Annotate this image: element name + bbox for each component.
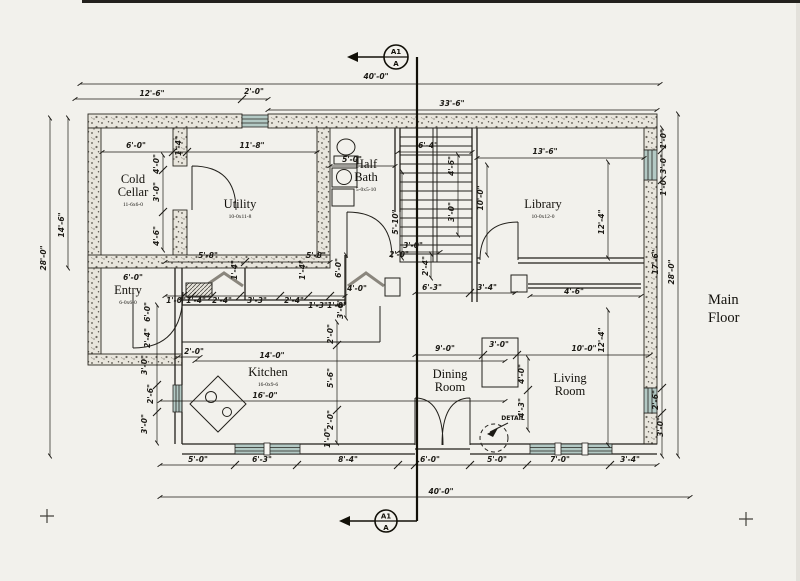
dimension-label: 6'-0" (143, 302, 152, 322)
dimension-label: 28'-0" (667, 259, 676, 284)
wall-right-mid (644, 180, 657, 388)
window-living-bottom (530, 444, 612, 454)
room-label: Kitchen (248, 365, 288, 379)
dimension-label: 10'-0" (476, 185, 485, 210)
dimension-label: 1'-0" (323, 428, 332, 448)
dimension-label: 3'-0" (403, 241, 423, 250)
window-kitchen-left (173, 385, 182, 412)
section-marker-sheet: A1 (391, 48, 401, 56)
room-label: Library (524, 197, 562, 211)
window-right-library (644, 150, 657, 180)
dimension-label: 6'-0" (126, 141, 146, 150)
floor-plan-drawing: A1 A A1 A ColdCellar11-6x6-0Utility10-0x… (0, 0, 800, 581)
dimension-label: 2'-4" (143, 328, 152, 348)
dimension-label: 4'-0" (347, 284, 367, 293)
window-mullion (264, 443, 270, 455)
window-mullion (555, 443, 561, 455)
dimension-label: 1'-0" (659, 129, 668, 149)
dimension-label: 33'-6" (440, 99, 465, 108)
dimension-label: 14'-6" (57, 212, 66, 237)
dimension-label: 9'-0" (435, 344, 455, 353)
wall-right-upper (644, 128, 657, 150)
section-marker-detail: A (393, 60, 399, 68)
dimension-label: 5'-8" (198, 251, 218, 260)
wall-top-right (268, 114, 657, 128)
dimension-label: 2'-6" (651, 390, 660, 410)
dimension-label: 3'-6" (336, 299, 345, 319)
window-top-utility (242, 115, 268, 127)
dimension-label: 3'-0" (447, 202, 456, 222)
dimension-label: 1'-0" (659, 176, 668, 196)
detail-callout-label: DETAIL (501, 415, 525, 422)
dimension-label: 5'-0" (188, 455, 208, 464)
room-label: Room (435, 380, 466, 394)
room-size-label: 10-0x12-0 (532, 214, 555, 220)
dimension-label: 3'-0" (489, 340, 509, 349)
wall-top-left (88, 114, 242, 128)
room-label: Entry (114, 283, 143, 297)
column-post (511, 275, 527, 292)
wall-entry-bottom (88, 354, 182, 365)
dimension-label: 3'-0" (140, 355, 149, 375)
room-label: Bath (354, 170, 378, 184)
dimension-label: 3'-0" (152, 182, 161, 202)
dimension-label: 11'-8" (240, 141, 265, 150)
dimension-label: 6'-3" (422, 283, 442, 292)
dimension-label: 6'-3" (252, 455, 272, 464)
dimension-label: 28'-0" (39, 245, 48, 270)
window-mullion (582, 443, 588, 455)
dimension-label: 5'-8" (306, 251, 326, 260)
dimension-label: 1'-4" (230, 260, 239, 280)
room-size-label: 11-6x6-0 (123, 202, 143, 208)
room-size-label: 5-0x5-10 (356, 187, 376, 193)
paper-edge-shade (796, 0, 800, 581)
dimension-label: 6'-0" (123, 273, 143, 282)
dimension-label: 3'-0" (140, 414, 149, 434)
dimension-label: 4'-0" (517, 364, 526, 384)
dimension-label: 4'-6" (564, 287, 584, 296)
dimension-label: 17'-6" (651, 249, 660, 274)
dimension-label: 5'-0" (487, 455, 507, 464)
dimension-label: 40'-0" (429, 487, 454, 496)
dimension-label: 2'-4" (212, 296, 232, 305)
dimension-label: 1'-4" (298, 260, 307, 280)
wall-left (88, 128, 101, 354)
dimension-label: 14'-0" (260, 351, 285, 360)
scan-edge-line (82, 0, 800, 3)
dimension-label: 2'-0" (326, 324, 335, 344)
wall-halfbath-left (317, 128, 330, 255)
dimension-label: 5'-0" (342, 155, 362, 164)
dimension-label: 10'-0" (572, 344, 597, 353)
sheet-title-line2: Floor (708, 310, 740, 326)
dimension-label: 3'-4" (620, 455, 640, 464)
dimension-label: 12'-4" (597, 209, 606, 234)
utility-cabinet (186, 283, 212, 297)
dimension-label: 12'-6" (140, 89, 165, 98)
dimension-label: 2'-4" (421, 256, 430, 276)
room-label: Dining (433, 367, 468, 381)
dimension-label: 1'-0" (166, 296, 186, 305)
dimension-label: 6'-0" (334, 258, 343, 278)
room-label: Living (553, 371, 587, 385)
dimension-label: 40'-0" (364, 72, 389, 81)
dimension-label: 3'-0" (659, 154, 668, 174)
dimension-label: 2'-4" (284, 296, 304, 305)
dimension-label: 2'-0" (184, 347, 204, 356)
section-marker-sheet: A1 (381, 513, 391, 521)
wall-coldcellar-right-lower (173, 210, 187, 255)
room-label: Utility (224, 197, 257, 211)
room-label: Cellar (118, 185, 149, 199)
dimension-label: 1'-4" (174, 136, 183, 156)
dimension-label: 4'-6" (152, 226, 161, 246)
dimension-label: 7'-0" (550, 455, 570, 464)
dimension-label: 6'-4" (418, 141, 438, 150)
dimension-label: 13'-6" (533, 147, 558, 156)
dimension-label: 4'-6" (447, 156, 456, 176)
dimension-label: 1'-3" (308, 301, 328, 310)
dimension-label: 1'-4" (186, 296, 206, 305)
dimension-label: 2'-0" (244, 87, 264, 96)
sheet-title-line1: Main (708, 292, 739, 308)
dimension-label: 8'-4" (338, 455, 358, 464)
room-size-label: 6-0x6-0 (119, 300, 137, 306)
dimension-label: 2'-0" (326, 410, 335, 430)
dimension-label: 12'-4" (597, 327, 606, 352)
room-size-label: 10-0x11-8 (229, 214, 252, 220)
dimension-label: 5'-10" (391, 209, 400, 234)
dimension-label: 5'-6" (326, 368, 335, 388)
dimension-label: 6'-0" (420, 455, 440, 464)
dimension-label: 4'-0" (152, 154, 161, 174)
dimension-label: 3'-4" (477, 283, 497, 292)
dimension-label: 2'-6" (146, 384, 155, 404)
dimension-label: 3'-3" (247, 296, 267, 305)
dimension-label: 16'-0" (253, 391, 278, 400)
floor-plan-page: A1 A A1 A ColdCellar11-6x6-0Utility10-0x… (0, 0, 800, 581)
room-label: Cold (121, 172, 146, 186)
dimension-label: 3'-0" (656, 417, 665, 437)
room-label: Room (555, 384, 586, 398)
dimension-label: 2'-0" (389, 250, 409, 259)
section-marker-detail: A (383, 524, 389, 532)
room-size-label: 16-0x9-6 (258, 382, 278, 388)
